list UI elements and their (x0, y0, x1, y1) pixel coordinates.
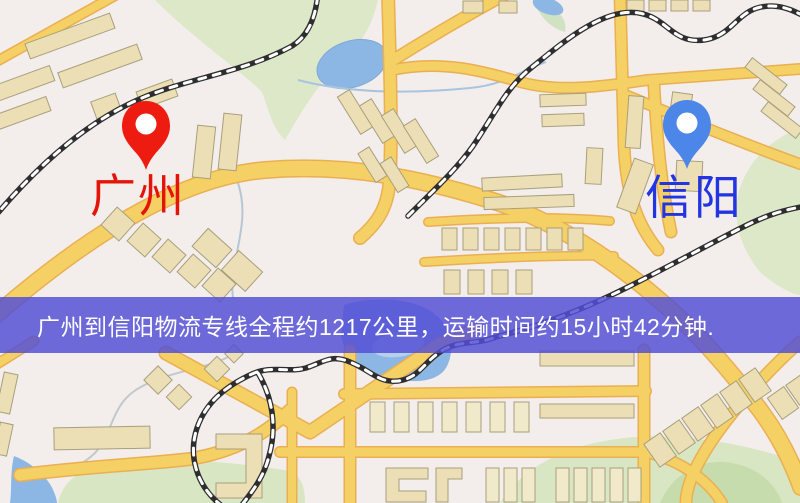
origin-pin-icon[interactable] (120, 100, 172, 172)
route-info-text: 广州到信阳物流专线全程约1217公里，运输时间约15小时42分钟. (0, 308, 714, 342)
map-view: 广州 信阳 广州到信阳物流专线全程约1217公里，运输时间约15小时42分钟. (0, 0, 800, 503)
route-info-banner: 广州到信阳物流专线全程约1217公里，运输时间约15小时42分钟. (0, 297, 800, 353)
destination-pin-icon[interactable] (661, 99, 713, 171)
destination-city-label: 信阳 (645, 176, 743, 223)
origin-city-label: 广州 (90, 174, 186, 220)
map-background (0, 0, 800, 503)
